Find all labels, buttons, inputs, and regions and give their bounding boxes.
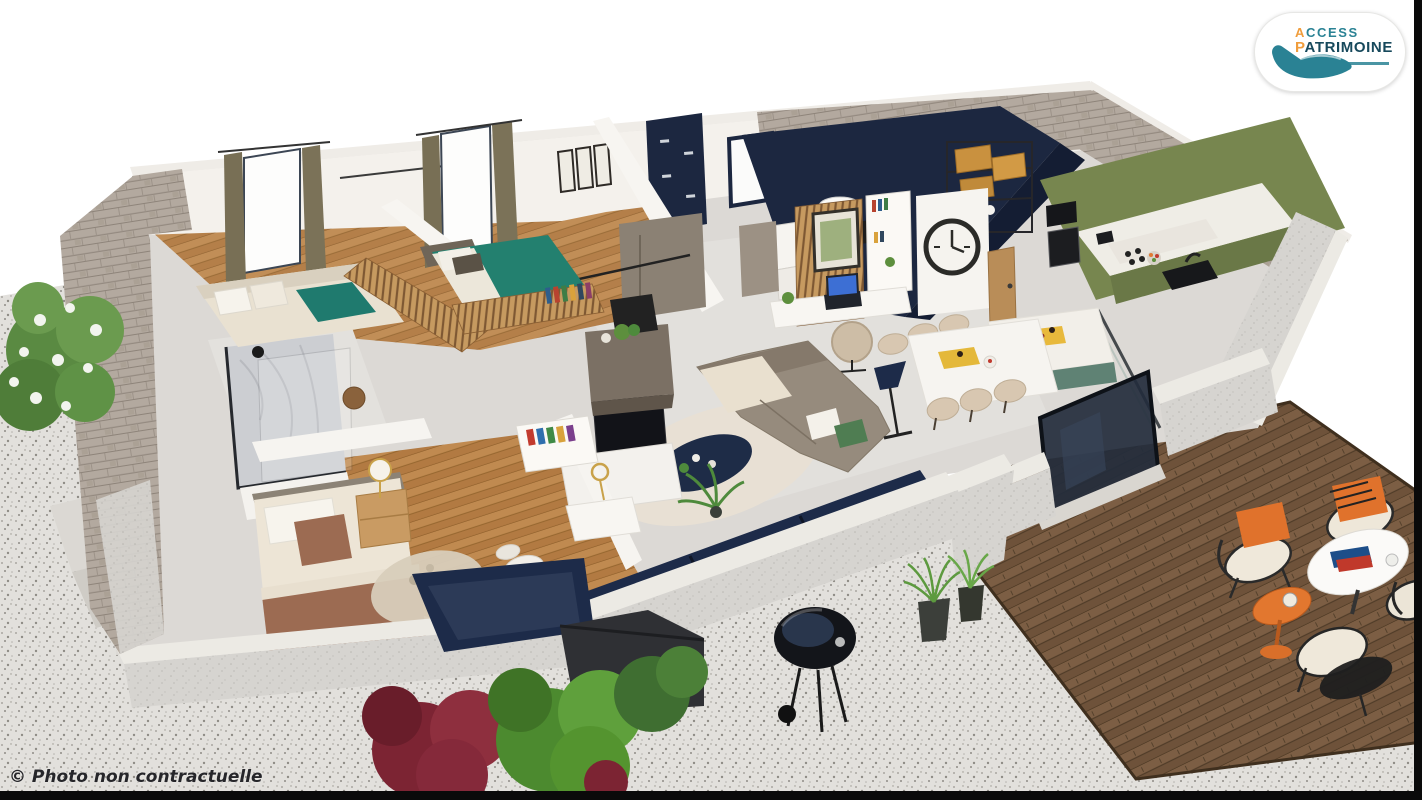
- wall-frames: [558, 144, 611, 192]
- agency-logo: ACCESS PATRIMOINE: [1254, 12, 1406, 92]
- desk-plant: [782, 292, 794, 304]
- laptop-screen: [827, 274, 858, 297]
- cardboard-box: [955, 145, 992, 173]
- wardrobe: [516, 416, 598, 472]
- cup: [692, 454, 700, 462]
- wine-bottle: [1049, 327, 1055, 333]
- vase: [601, 333, 611, 343]
- nightstand: [356, 489, 411, 548]
- table-plant: [679, 463, 689, 473]
- bedroom2-window: [441, 126, 492, 259]
- image-edge-bottom: [0, 791, 1422, 800]
- door-handle: [1008, 284, 1013, 289]
- shower-glass: [258, 348, 352, 482]
- logo-line2: PATRIMOINE: [1295, 40, 1399, 56]
- oven: [1048, 227, 1080, 267]
- floorplan-scene: [0, 0, 1422, 800]
- bottle: [957, 351, 963, 357]
- logo-tagline-bar: [1329, 62, 1389, 65]
- logo-text: ACCESS PATRIMOINE: [1295, 26, 1399, 55]
- logo-line1: ACCESS: [1295, 26, 1399, 40]
- floorplan-render: ACCESS PATRIMOINE © Photo non contractue…: [0, 0, 1422, 800]
- coffee-cup: [1386, 554, 1398, 566]
- wood-stool: [343, 387, 365, 409]
- bathroom-lamp: [252, 346, 264, 358]
- pillow: [250, 281, 288, 309]
- hall-closet-2: [739, 221, 779, 297]
- pillow: [214, 287, 252, 315]
- console-plant: [614, 324, 630, 340]
- office-chair: [832, 322, 872, 362]
- bedroom1-window: [244, 149, 300, 273]
- image-edge-right: [1414, 0, 1422, 800]
- bbq-label: [835, 637, 845, 647]
- candle: [1283, 593, 1297, 607]
- cardboard-box: [992, 153, 1026, 181]
- watermark-text: © Photo non contractuelle: [9, 767, 263, 787]
- bbq-wheel: [778, 705, 796, 723]
- pillow-brown: [294, 514, 352, 566]
- white-flower-bush: [0, 282, 124, 431]
- wall-art-print: [820, 218, 852, 262]
